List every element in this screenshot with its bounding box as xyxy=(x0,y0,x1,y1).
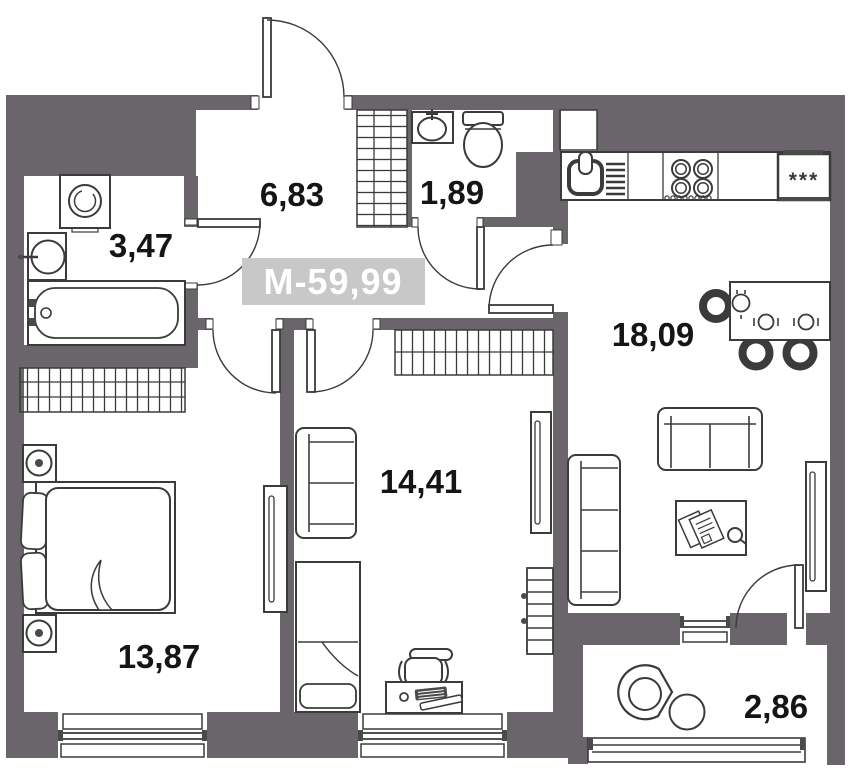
dining-set xyxy=(703,282,830,367)
unit-badge-label: М-59,99 xyxy=(263,261,402,302)
desk-icon xyxy=(386,682,462,713)
tv-living-icon xyxy=(806,462,826,591)
coffee-table-icon xyxy=(676,501,746,555)
area-label-kitchen-living: 18,09 xyxy=(612,316,695,353)
room-door xyxy=(307,330,373,392)
office-chair-icon xyxy=(399,649,452,685)
kitchen-door xyxy=(489,245,553,313)
area-label-wc: 1,89 xyxy=(420,174,484,211)
area-label-hallway: 6,83 xyxy=(260,176,324,213)
bedroom-window xyxy=(58,712,207,758)
bedroom-wardrobe xyxy=(20,368,185,412)
area-label-bedroom: 13,87 xyxy=(118,638,201,675)
entrance-door xyxy=(263,18,344,97)
unit-badge: М-59,99 xyxy=(242,258,425,305)
hallway-wardrobe xyxy=(357,110,407,227)
area-label-room: 14,41 xyxy=(380,463,463,500)
area-label-balcony: 2,86 xyxy=(744,688,808,725)
radiator-icon xyxy=(521,568,553,654)
wc-sink-icon xyxy=(412,109,453,143)
washing-machine-icon xyxy=(60,175,110,232)
kitchen-niche xyxy=(560,110,597,150)
sofa-three-seat-icon xyxy=(568,455,620,605)
nightstand-icon xyxy=(23,445,56,482)
bedroom-door xyxy=(213,330,280,393)
floor-plan: *** xyxy=(0,0,851,773)
room-wardrobe xyxy=(395,330,553,375)
fridge-stars: *** xyxy=(789,169,820,192)
area-label-bathroom: 3,47 xyxy=(109,227,173,264)
lounge-chair-icon xyxy=(618,665,672,719)
balcony-table-icon xyxy=(670,695,705,730)
loveseat-icon xyxy=(296,428,356,538)
bathtub-icon xyxy=(28,281,185,345)
living-room-window xyxy=(680,613,730,645)
nightstand-icon xyxy=(23,615,56,652)
double-bed-icon xyxy=(21,482,175,613)
single-bed-icon xyxy=(296,562,360,712)
fridge-icon: *** xyxy=(778,150,830,201)
tv-bedroom-icon xyxy=(264,486,287,612)
wc-door xyxy=(418,227,484,289)
toilet-icon xyxy=(463,112,503,167)
room-window xyxy=(358,712,507,758)
tv-room-icon xyxy=(531,412,551,533)
bathroom-sink-icon xyxy=(18,233,66,280)
sofa-two-seat-icon xyxy=(658,408,762,470)
floor-plan-drawing: *** xyxy=(0,0,851,773)
